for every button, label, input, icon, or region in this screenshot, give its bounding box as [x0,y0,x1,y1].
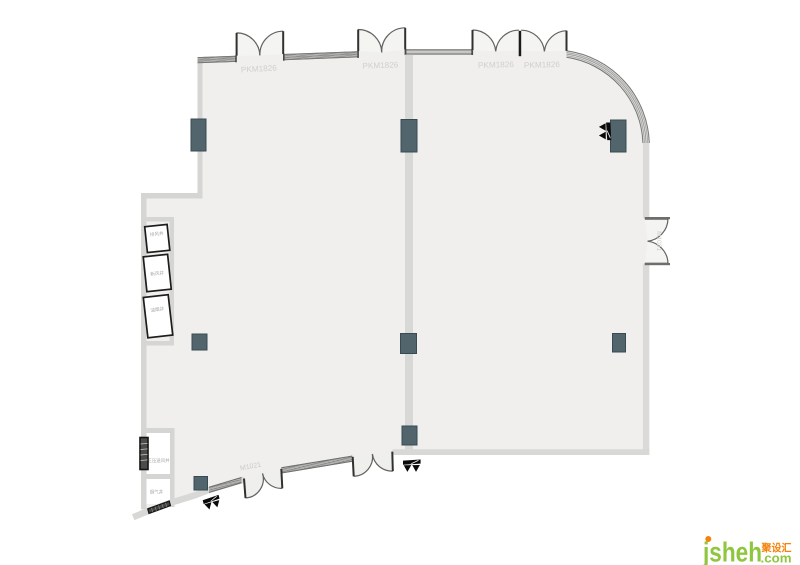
svg-text:PKM1826: PKM1826 [524,60,561,70]
svg-text:PKM1826: PKM1826 [241,64,278,75]
svg-text:烟气井: 烟气井 [150,489,164,496]
svg-text:PKM1826: PKM1826 [478,60,515,70]
svg-text:M1021: M1021 [655,231,662,251]
svg-text:.com: .com [761,551,792,565]
svg-text:PKM1826: PKM1826 [362,60,399,70]
svg-text:正压送风井: 正压送风井 [148,457,171,464]
